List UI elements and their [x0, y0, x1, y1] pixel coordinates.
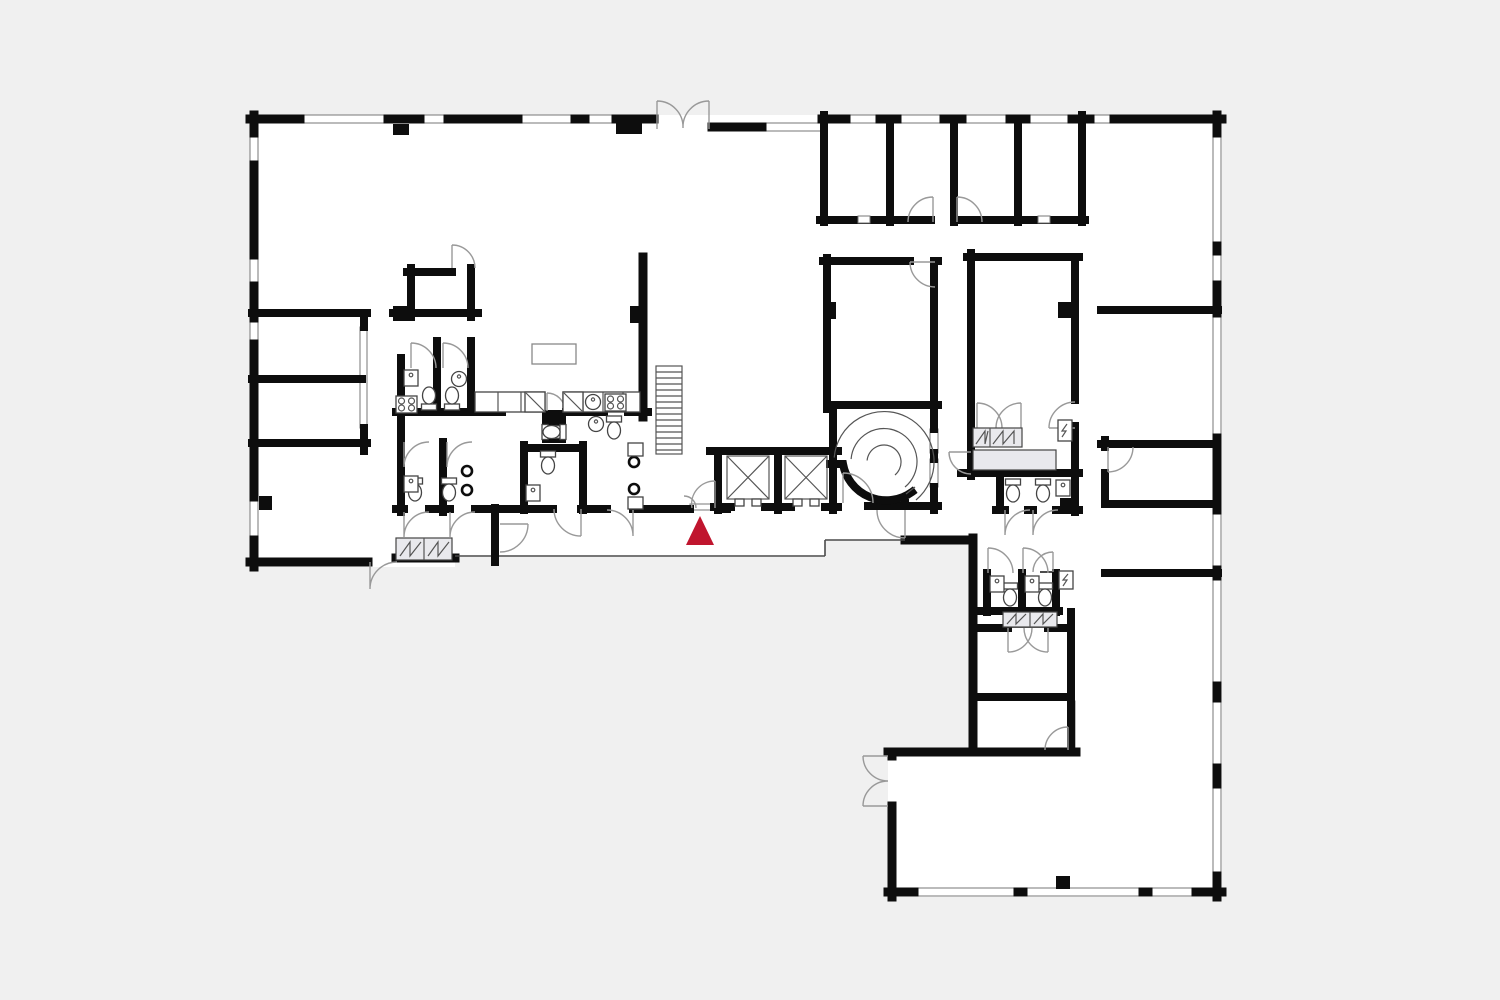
bench — [973, 450, 1056, 470]
table — [532, 344, 576, 364]
floor-plan-canvas — [0, 0, 1500, 1000]
floor-plan-svg — [0, 0, 1500, 1000]
wardrobe-1 — [396, 538, 452, 560]
wardrobe-2 — [973, 428, 1022, 447]
wardrobe-3 — [1003, 612, 1057, 627]
